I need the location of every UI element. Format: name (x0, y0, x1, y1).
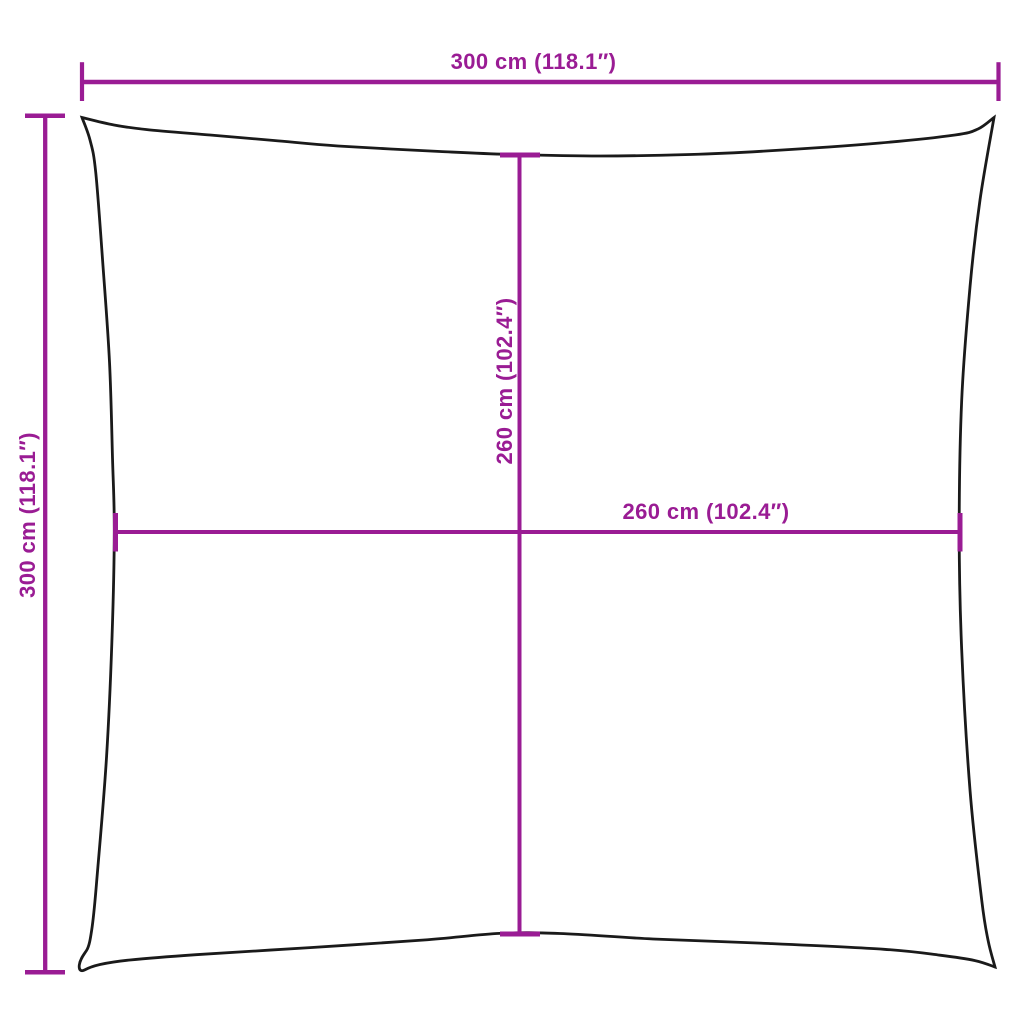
svg-text:260 cm (102.4″): 260 cm (102.4″) (623, 499, 790, 524)
svg-text:300 cm (118.1″): 300 cm (118.1″) (451, 49, 617, 74)
svg-text:260 cm (102.4″): 260 cm (102.4″) (492, 298, 517, 465)
svg-text:300 cm (118.1″): 300 cm (118.1″) (15, 432, 40, 598)
